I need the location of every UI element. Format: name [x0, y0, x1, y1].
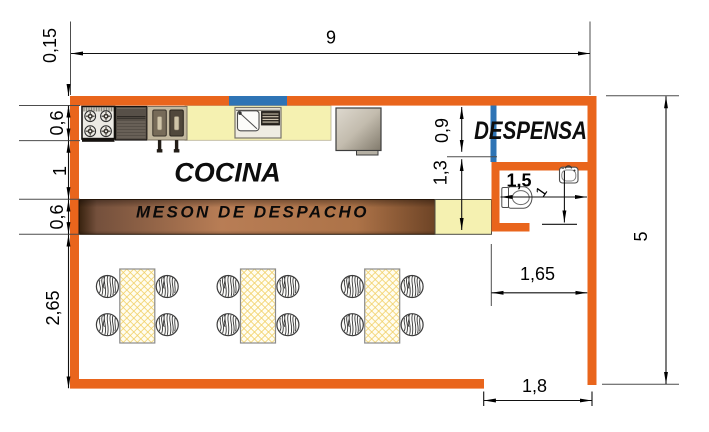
svg-text:1,5: 1,5: [507, 171, 532, 191]
svg-text:9: 9: [326, 28, 336, 48]
svg-text:1,65: 1,65: [520, 264, 555, 284]
svg-text:2,65: 2,65: [43, 290, 63, 325]
svg-text:0,6: 0,6: [47, 204, 67, 229]
svg-text:1: 1: [50, 166, 70, 176]
svg-text:0,15: 0,15: [40, 28, 60, 63]
svg-text:0,9: 0,9: [432, 118, 452, 143]
svg-text:1,3: 1,3: [431, 160, 451, 185]
svg-text:1: 1: [532, 184, 551, 201]
svg-text:0,6: 0,6: [47, 110, 67, 135]
svg-text:5: 5: [631, 231, 651, 241]
svg-text:1,8: 1,8: [522, 376, 547, 396]
svg-text:DESPENSA: DESPENSA: [474, 116, 587, 144]
svg-text:MESON DE DESPACHO: MESON DE DESPACHO: [136, 203, 369, 222]
svg-text:COCINA: COCINA: [174, 158, 281, 188]
